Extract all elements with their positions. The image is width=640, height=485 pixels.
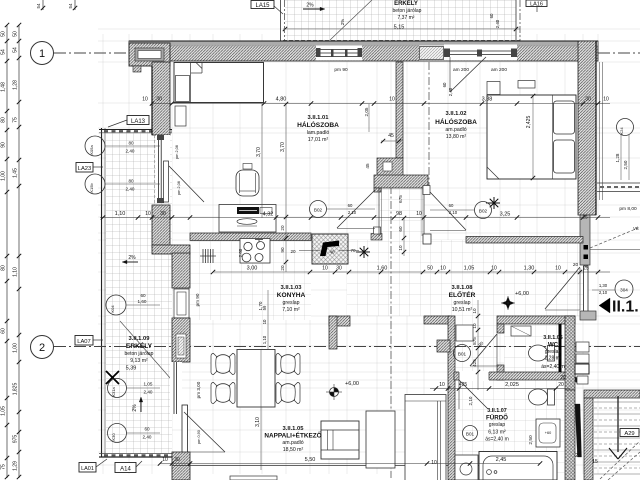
svg-text:NAPPALI+ÉTKEZŐ: NAPPALI+ÉTKEZŐ — [264, 431, 321, 440]
svg-text:425: 425 — [459, 382, 468, 388]
svg-text:10: 10 — [603, 97, 609, 103]
svg-text:54: 54 — [13, 47, 19, 53]
svg-text:2,05: 2,05 — [364, 107, 369, 116]
svg-text:20: 20 — [560, 375, 566, 381]
svg-text:am.padló: am.padló — [445, 127, 466, 133]
svg-text:3.II.1.09: 3.II.1.09 — [129, 336, 151, 342]
svg-text:1,05: 1,05 — [464, 266, 475, 272]
svg-text:3,10: 3,10 — [255, 417, 261, 427]
svg-text:30: 30 — [156, 97, 162, 103]
svg-text:2,40: 2,40 — [126, 149, 135, 154]
svg-text:425: 425 — [472, 359, 477, 367]
svg-text:90: 90 — [1, 142, 7, 148]
svg-text:20: 20 — [573, 262, 579, 268]
svg-text:75: 75 — [1, 464, 7, 470]
svg-text:LA15: LA15 — [255, 3, 270, 9]
svg-text:beton járólap: beton járólap — [393, 8, 422, 14]
svg-text:1,48: 1,48 — [1, 82, 7, 92]
svg-text:2,50: 2,50 — [623, 160, 628, 169]
svg-text:2: 2 — [39, 342, 45, 354]
svg-text:50: 50 — [427, 266, 433, 272]
svg-text:60: 60 — [442, 82, 447, 87]
svg-text:VÉ: VÉ — [633, 226, 639, 231]
svg-text:25: 25 — [583, 266, 589, 272]
svg-text:K04: K04 — [110, 305, 115, 313]
svg-text:ERKÉLY: ERKÉLY — [126, 341, 153, 350]
svg-text:1,28: 1,28 — [13, 80, 19, 90]
svg-text:pm 2,08: pm 2,08 — [175, 145, 179, 159]
svg-text:greslap: greslap — [453, 300, 470, 306]
svg-text:10: 10 — [389, 97, 395, 103]
svg-text:pm 90: pm 90 — [195, 293, 200, 306]
svg-text:HÁLÓSZOBA: HÁLÓSZOBA — [435, 117, 477, 126]
svg-text:2,40: 2,40 — [495, 19, 500, 28]
svg-text:54: 54 — [68, 3, 73, 9]
svg-text:B01: B01 — [458, 352, 467, 357]
svg-text:1,60: 1,60 — [377, 266, 388, 272]
svg-text:greslap: greslap — [489, 422, 506, 428]
svg-text:875: 875 — [472, 337, 477, 345]
svg-text:17,01 m²: 17,01 m² — [308, 137, 329, 143]
svg-text:54: 54 — [1, 49, 7, 55]
svg-text:80: 80 — [128, 179, 134, 184]
svg-text:80: 80 — [1, 117, 7, 123]
svg-text:10: 10 — [262, 319, 267, 324]
svg-text:pm 90: pm 90 — [334, 67, 348, 73]
svg-text:A29: A29 — [624, 431, 634, 437]
svg-text:B02: B02 — [479, 209, 488, 214]
svg-text:2,50: 2,50 — [528, 435, 534, 445]
svg-text:75: 75 — [13, 117, 19, 123]
svg-text:+60: +60 — [545, 431, 551, 435]
svg-text:20: 20 — [558, 382, 564, 388]
svg-text:greslap: greslap — [282, 300, 299, 306]
svg-text:30: 30 — [585, 97, 591, 103]
svg-text:2,10: 2,10 — [348, 210, 357, 215]
svg-text:B01: B01 — [466, 432, 475, 437]
svg-text:20: 20 — [575, 453, 581, 459]
svg-text:3.II.1.03: 3.II.1.03 — [281, 285, 303, 291]
svg-text:II.1.: II.1. — [612, 299, 639, 316]
svg-text:3.II.1.08: 3.II.1.08 — [452, 285, 474, 291]
svg-text:10: 10 — [398, 245, 403, 251]
svg-text:2%: 2% — [132, 404, 138, 412]
svg-text:2,45: 2,45 — [496, 457, 507, 463]
svg-text:K05a: K05a — [89, 145, 94, 155]
svg-text:4,32: 4,32 — [263, 212, 274, 218]
svg-text:13,80 m²: 13,80 m² — [446, 134, 467, 140]
svg-text:LA13: LA13 — [131, 119, 146, 125]
svg-text:60: 60 — [144, 427, 150, 432]
svg-text:1,10: 1,10 — [13, 267, 19, 277]
svg-text:1,05: 1,05 — [1, 406, 7, 416]
svg-text:LA01: LA01 — [81, 466, 94, 472]
svg-text:5,39: 5,39 — [126, 366, 137, 372]
svg-text:K15b: K15b — [89, 183, 94, 193]
svg-text:3,00: 3,00 — [247, 266, 258, 272]
svg-text:60: 60 — [140, 293, 146, 298]
svg-text:54: 54 — [36, 3, 41, 9]
svg-text:45: 45 — [388, 133, 394, 139]
svg-text:10: 10 — [440, 266, 446, 272]
svg-text:98: 98 — [396, 211, 402, 217]
svg-text:10: 10 — [142, 97, 148, 103]
svg-text:675: 675 — [398, 195, 403, 203]
svg-text:10: 10 — [162, 457, 168, 463]
svg-text:5,15: 5,15 — [394, 25, 405, 31]
svg-text:5,50: 5,50 — [305, 457, 316, 463]
svg-text:10: 10 — [472, 323, 477, 329]
svg-text:50: 50 — [13, 31, 19, 37]
svg-text:1,00: 1,00 — [1, 171, 7, 181]
svg-text:2,40: 2,40 — [448, 87, 453, 96]
svg-text:am.padló: am.padló — [282, 440, 303, 446]
svg-text:3.II.1.05: 3.II.1.05 — [283, 426, 305, 432]
svg-text:60: 60 — [1, 328, 7, 334]
svg-text:3,88: 3,88 — [482, 97, 493, 103]
svg-text:304: 304 — [620, 288, 628, 293]
svg-text:LA16: LA16 — [530, 2, 543, 8]
svg-text:LA07: LA07 — [77, 339, 91, 345]
svg-text:3.II.1.06: 3.II.1.06 — [543, 335, 562, 341]
svg-text:1,10: 1,10 — [262, 335, 267, 344]
svg-text:HÁLÓSZOBA: HÁLÓSZOBA — [297, 120, 339, 129]
svg-text:60: 60 — [348, 203, 353, 208]
svg-text:K30: K30 — [111, 433, 116, 441]
svg-text:B02: B02 — [314, 208, 323, 213]
svg-text:ás=2,40 m: ás=2,40 m — [485, 437, 509, 443]
svg-text:pm 8,00: pm 8,00 — [619, 206, 637, 212]
svg-text:1,30: 1,30 — [524, 266, 535, 272]
svg-text:2,10: 2,10 — [468, 396, 473, 405]
svg-text:60: 60 — [449, 203, 454, 208]
svg-text:10: 10 — [555, 266, 561, 272]
svg-text:pm 0,90: pm 0,90 — [197, 430, 201, 444]
svg-text:+6,00: +6,00 — [345, 381, 359, 387]
svg-text:10: 10 — [491, 266, 497, 272]
svg-text:2,40: 2,40 — [144, 390, 153, 395]
svg-text:9,13 m²: 9,13 m² — [130, 358, 148, 364]
svg-text:20: 20 — [290, 249, 296, 254]
svg-text:10: 10 — [145, 211, 151, 217]
svg-text:1,28 m²: 1,28 m² — [545, 356, 562, 362]
svg-text:2%: 2% — [128, 255, 136, 261]
svg-text:ERKÉLY: ERKÉLY — [394, 0, 418, 7]
svg-text:59: 59 — [262, 305, 267, 310]
svg-text:80: 80 — [128, 141, 134, 146]
svg-text:50: 50 — [1, 31, 7, 37]
svg-text:+6,00: +6,00 — [515, 291, 529, 297]
svg-text:10: 10 — [416, 211, 422, 217]
svg-text:2,10: 2,10 — [599, 290, 608, 295]
svg-text:2%: 2% — [340, 19, 345, 25]
svg-text:2,40: 2,40 — [143, 435, 152, 440]
svg-text:A14: A14 — [120, 467, 131, 473]
svg-text:45: 45 — [365, 163, 370, 169]
svg-text:15: 15 — [592, 459, 598, 465]
svg-text:1,29: 1,29 — [13, 461, 19, 471]
svg-text:3.II.1.07: 3.II.1.07 — [487, 408, 506, 414]
svg-text:3.II.1.01: 3.II.1.01 — [308, 115, 330, 121]
svg-text:1,30: 1,30 — [599, 283, 608, 288]
svg-text:am 200: am 200 — [453, 67, 469, 73]
svg-text:KONYHA: KONYHA — [277, 292, 306, 299]
svg-text:K24: K24 — [619, 127, 624, 135]
svg-text:2%: 2% — [306, 3, 314, 9]
svg-text:1: 1 — [39, 48, 45, 60]
svg-text:1,45: 1,45 — [13, 168, 19, 178]
svg-text:4,80: 4,80 — [276, 97, 287, 103]
svg-text:975: 975 — [13, 435, 19, 444]
svg-text:80: 80 — [1, 265, 7, 271]
svg-text:10,51 m²: 10,51 m² — [452, 307, 473, 313]
svg-text:10: 10 — [472, 308, 477, 314]
svg-text:18,50 m²: 18,50 m² — [283, 447, 304, 453]
svg-text:2,40: 2,40 — [126, 187, 135, 192]
svg-text:2,60: 2,60 — [238, 248, 243, 257]
svg-text:beton járólap: beton járólap — [125, 351, 154, 357]
svg-text:30: 30 — [160, 211, 166, 217]
svg-text:3,70: 3,70 — [256, 147, 262, 157]
svg-text:ás=2,40 m: ás=2,40 m — [541, 364, 565, 370]
svg-text:90: 90 — [280, 247, 285, 253]
svg-text:lam.padló: lam.padló — [307, 130, 330, 136]
svg-text:10: 10 — [439, 382, 445, 388]
svg-text:6,13 m²: 6,13 m² — [488, 430, 506, 436]
svg-text:pm 2,08: pm 2,08 — [177, 181, 181, 195]
svg-text:1,10: 1,10 — [115, 211, 126, 217]
svg-text:20: 20 — [280, 265, 285, 271]
svg-text:20: 20 — [280, 225, 285, 231]
svg-text:greslap: greslap — [545, 349, 562, 355]
svg-text:1,60: 1,60 — [138, 299, 147, 304]
svg-text:am 200: am 200 — [491, 67, 507, 73]
svg-text:1,28: 1,28 — [615, 153, 620, 162]
svg-text:ELŐTÉR: ELŐTÉR — [449, 290, 476, 299]
svg-text:7,37 m²: 7,37 m² — [398, 15, 415, 21]
svg-text:3,70: 3,70 — [280, 142, 286, 152]
svg-text:FÜRDŐ: FÜRDŐ — [486, 415, 508, 422]
svg-text:2,025: 2,025 — [505, 382, 519, 388]
svg-text:7,10 m²: 7,10 m² — [282, 307, 300, 313]
svg-text:30: 30 — [336, 266, 342, 272]
svg-text:WC: WC — [548, 342, 559, 349]
svg-text:60: 60 — [489, 13, 494, 18]
svg-text:1,05: 1,05 — [144, 382, 153, 387]
svg-text:60: 60 — [398, 226, 403, 232]
svg-text:3,25: 3,25 — [500, 212, 511, 218]
svg-text:pm 3,00: pm 3,00 — [196, 381, 201, 398]
svg-text:10: 10 — [431, 460, 437, 466]
svg-text:40: 40 — [329, 250, 335, 255]
svg-text:10: 10 — [322, 266, 328, 272]
svg-text:30: 30 — [174, 457, 180, 463]
svg-text:1,825: 1,825 — [13, 383, 19, 396]
svg-text:2,425: 2,425 — [526, 116, 532, 129]
svg-text:3.II.1.02: 3.II.1.02 — [446, 111, 467, 117]
svg-text:2,10: 2,10 — [449, 210, 458, 215]
svg-text:K31a: K31a — [111, 387, 116, 397]
svg-text:1,00: 1,00 — [13, 343, 19, 353]
svg-text:LA23: LA23 — [78, 166, 92, 172]
